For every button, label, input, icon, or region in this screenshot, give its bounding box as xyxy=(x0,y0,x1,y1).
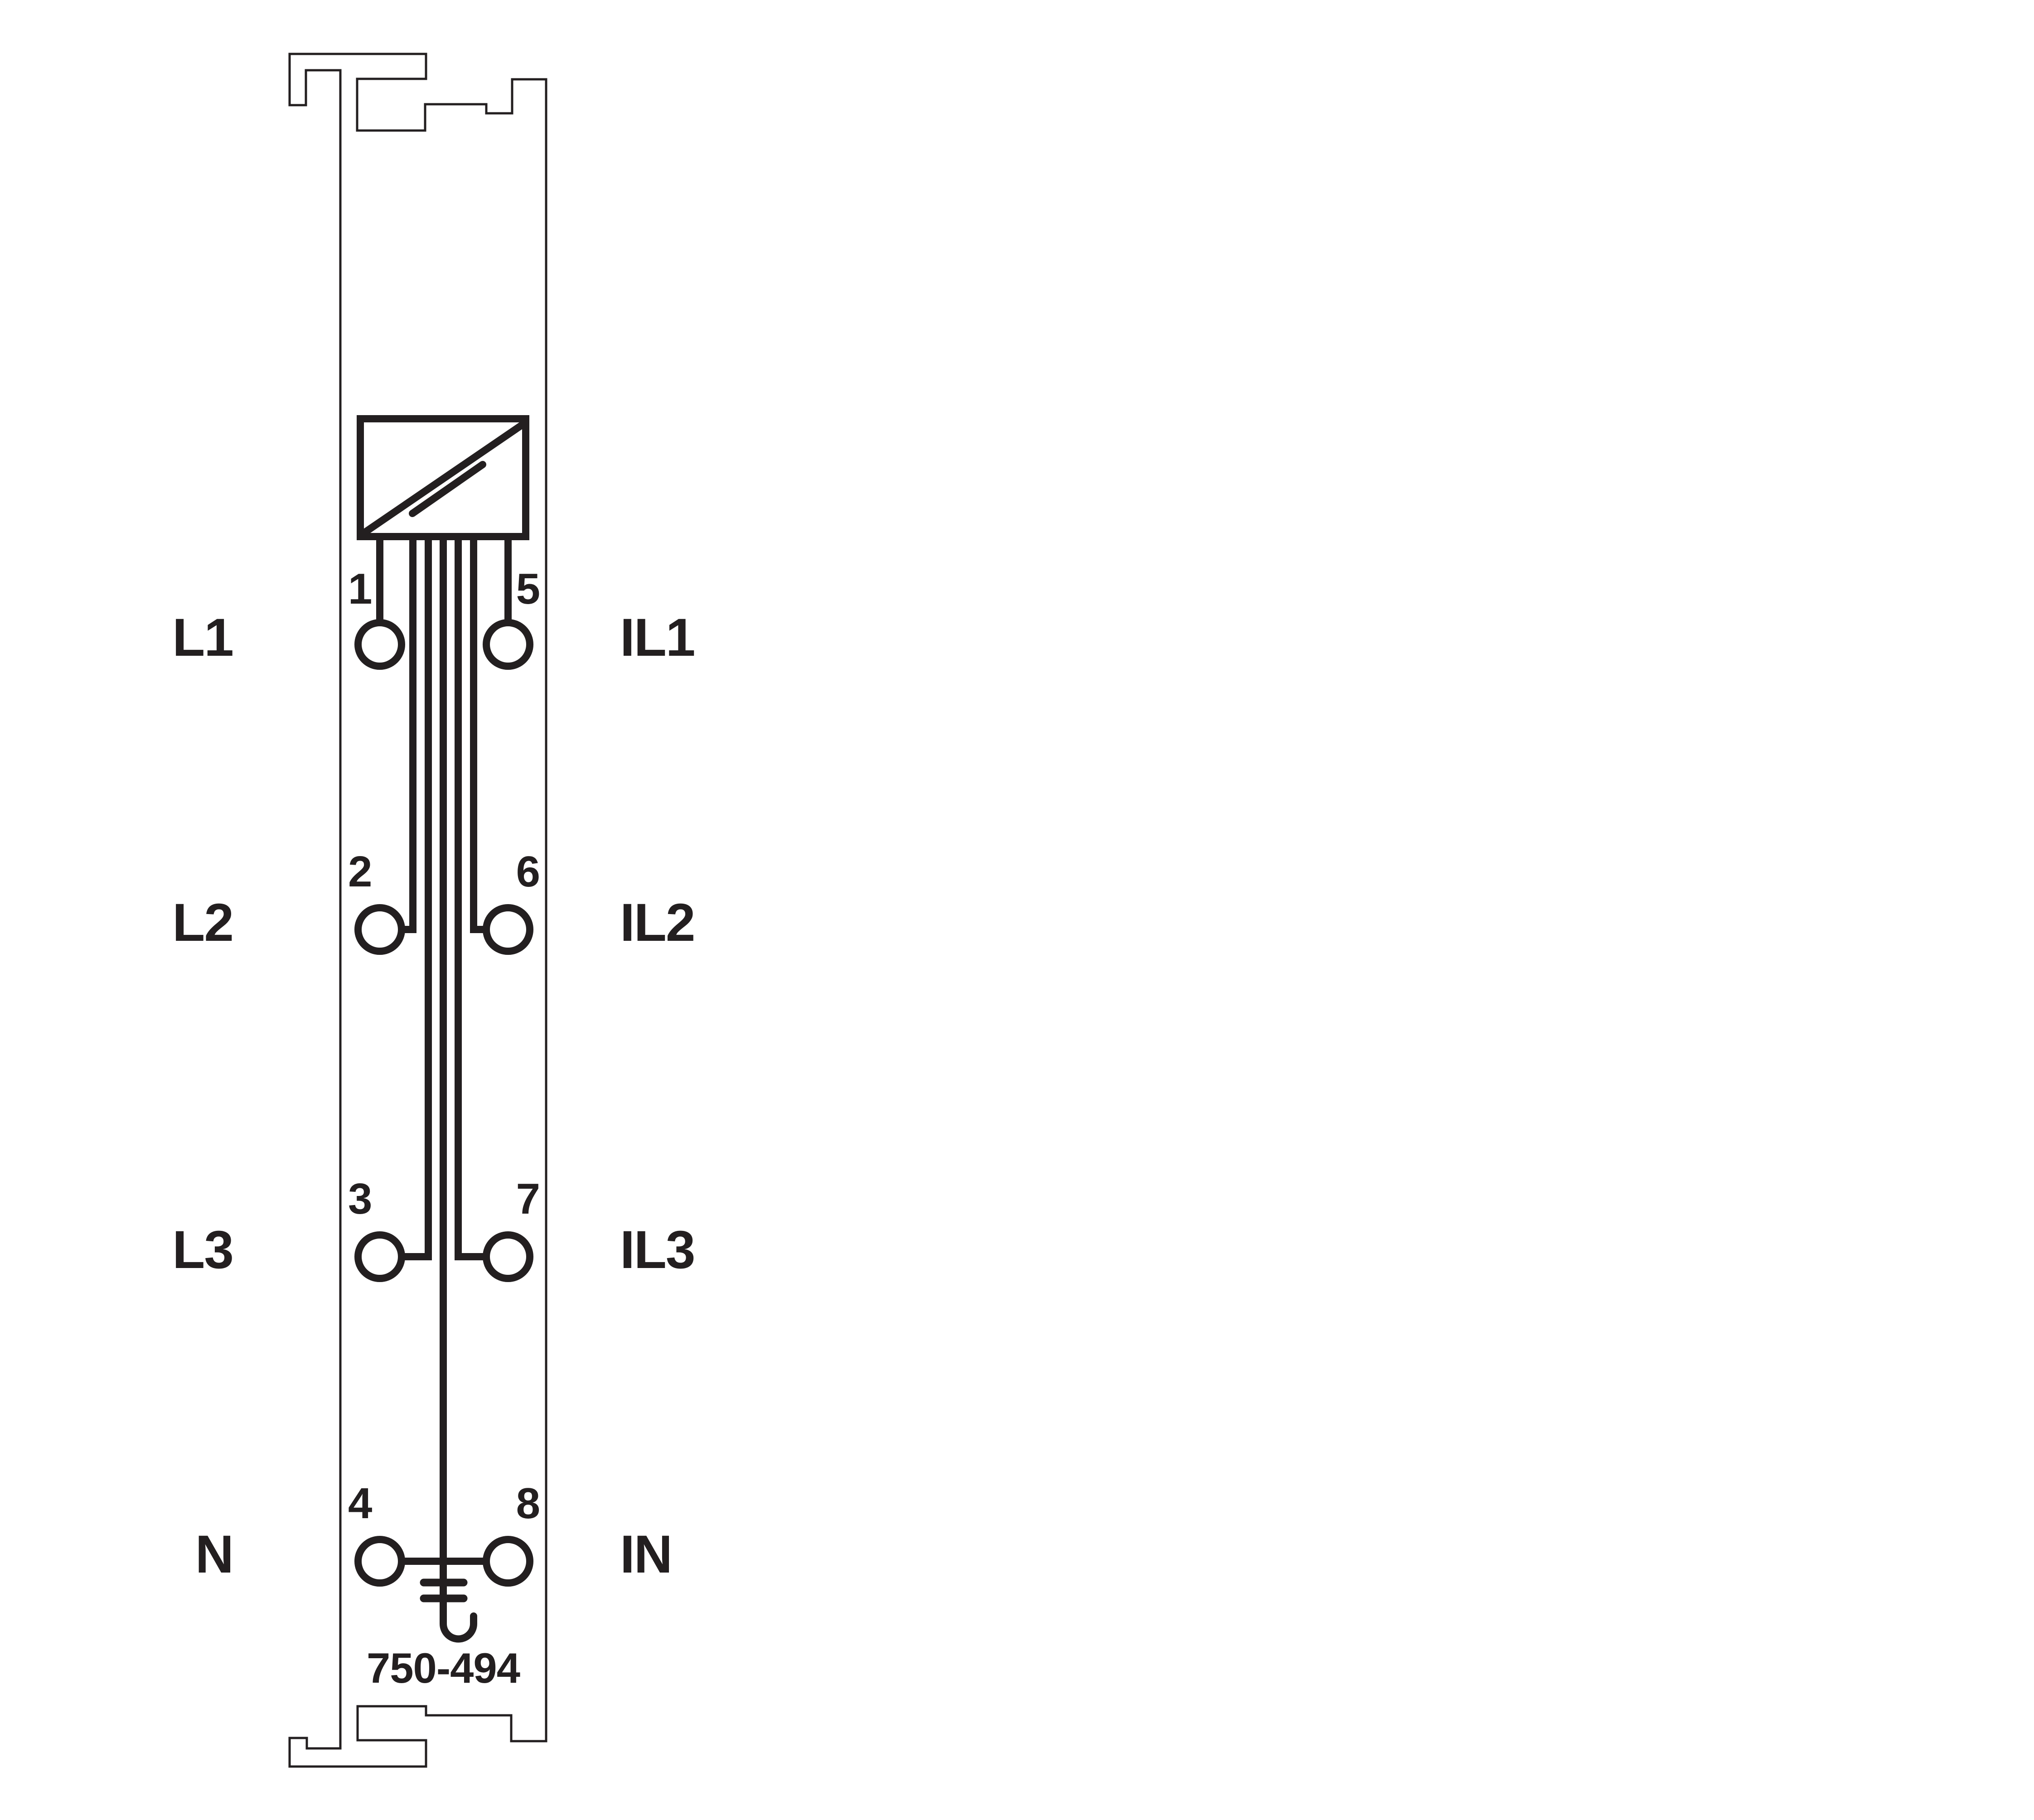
terminal-7-contact xyxy=(486,1235,530,1278)
terminal-2-contact xyxy=(358,908,402,951)
terminal-1-contact xyxy=(358,623,402,666)
signal-labels: L1 IL1 L2 IL2 L3 IL3 N IN xyxy=(172,608,694,1584)
wiring-diagram-canvas: 1 5 2 6 3 7 4 8 L1 IL1 L2 IL2 L3 IL3 N I… xyxy=(0,0,2034,1820)
wire-terminal-6 xyxy=(474,537,484,929)
label-IL1: IL1 xyxy=(620,608,695,668)
label-L3: L3 xyxy=(172,1220,233,1280)
terminal-4-contact xyxy=(358,1539,402,1583)
terminal-6-contact xyxy=(486,908,530,951)
terminal-2-number: 2 xyxy=(348,847,372,896)
terminal-5-contact xyxy=(486,623,530,666)
label-L2: L2 xyxy=(172,893,233,953)
terminal-3-contact xyxy=(358,1235,402,1278)
label-L1: L1 xyxy=(172,608,233,668)
ground-hook xyxy=(443,1598,474,1639)
terminal-1-number: 1 xyxy=(348,565,372,613)
label-IL2: IL2 xyxy=(620,893,695,953)
terminal-8-contact xyxy=(486,1539,530,1583)
label-IN: IN xyxy=(620,1525,672,1584)
terminal-6-number: 6 xyxy=(516,847,540,896)
wire-terminal-2 xyxy=(403,537,413,929)
terminal-7-number: 7 xyxy=(516,1175,540,1223)
terminal-3-number: 3 xyxy=(348,1175,372,1223)
module-wiring-diagram: 1 5 2 6 3 7 4 8 L1 IL1 L2 IL2 L3 IL3 N I… xyxy=(0,0,2034,1820)
terminal-8-number: 8 xyxy=(516,1479,540,1528)
terminal-5-number: 5 xyxy=(516,565,540,613)
label-IL3: IL3 xyxy=(620,1220,695,1280)
part-number: 750-494 xyxy=(367,1644,520,1692)
label-N: N xyxy=(195,1525,233,1584)
wiring xyxy=(380,537,508,1601)
ground-icon xyxy=(424,1583,474,1639)
transducer-icon xyxy=(360,419,526,537)
terminal-4-number: 4 xyxy=(348,1479,372,1528)
